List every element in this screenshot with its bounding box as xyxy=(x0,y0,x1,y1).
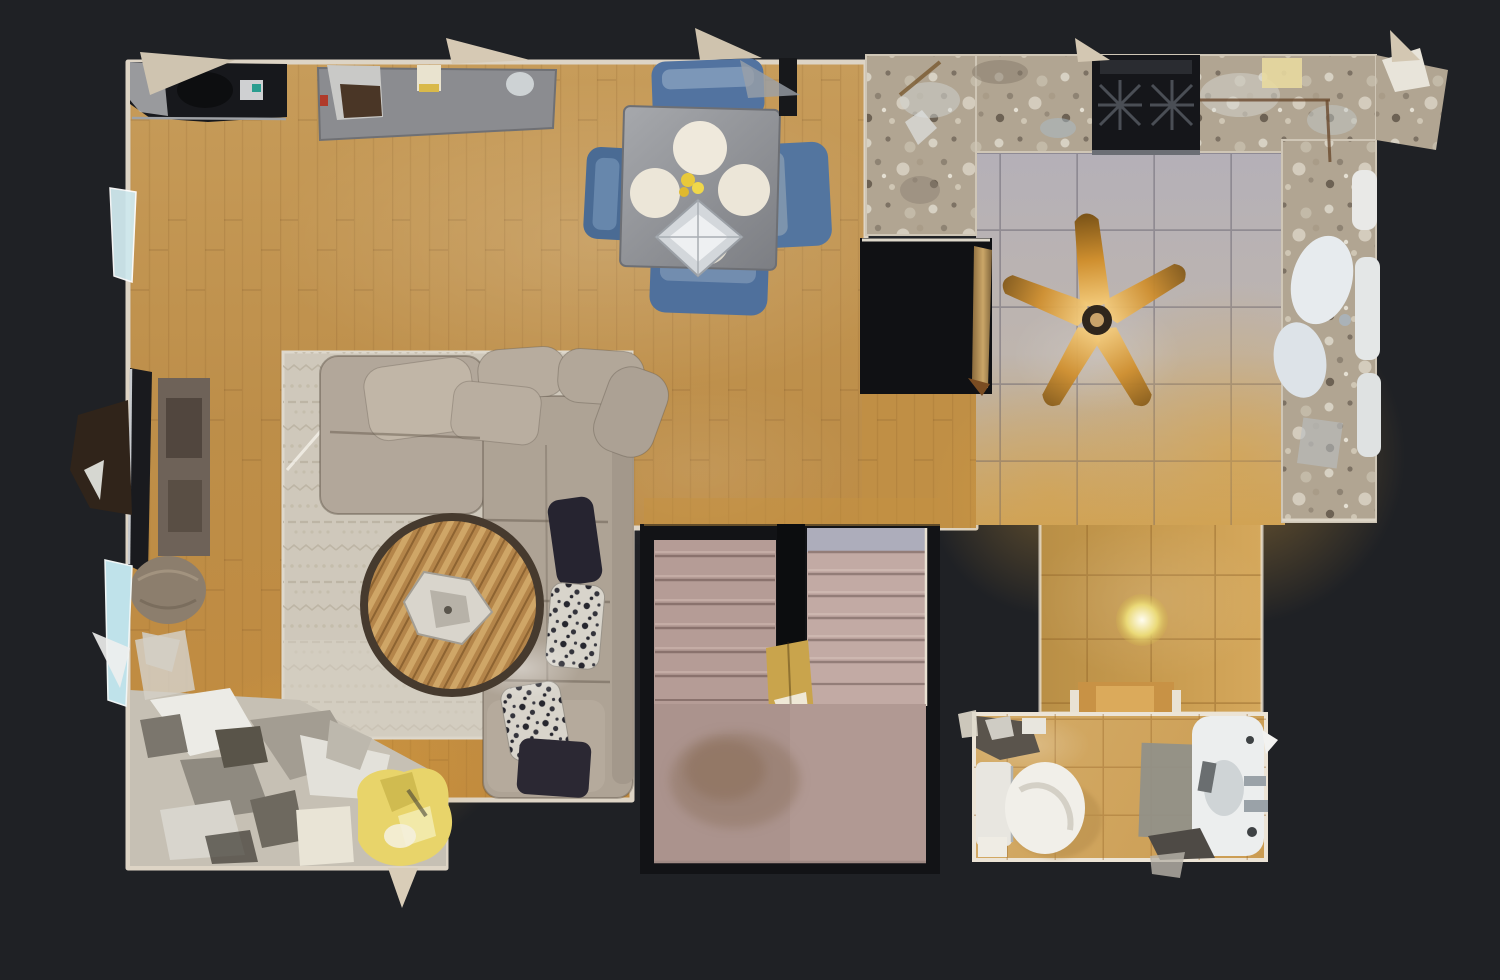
white-box xyxy=(296,806,354,866)
console-table xyxy=(318,65,556,140)
counter-peninsula xyxy=(866,55,976,235)
teal-fragment-upper xyxy=(110,188,136,282)
floorplan-canvas[interactable] xyxy=(0,0,1500,980)
floorplan-viewer[interactable] xyxy=(0,0,1500,980)
living-room[interactable] xyxy=(70,345,675,866)
stair-threshold xyxy=(644,498,940,526)
kitchen-island-opening xyxy=(860,238,992,396)
stair-gap xyxy=(777,524,805,650)
stairwell[interactable] xyxy=(640,498,940,874)
yellow-chair xyxy=(357,768,452,866)
console-red-object xyxy=(320,95,328,106)
pendant-light xyxy=(1116,594,1168,646)
console-bowl xyxy=(506,72,534,96)
ottoman-pouf xyxy=(130,556,206,624)
teal-object xyxy=(252,84,261,92)
gas-cooktop xyxy=(1092,55,1200,155)
